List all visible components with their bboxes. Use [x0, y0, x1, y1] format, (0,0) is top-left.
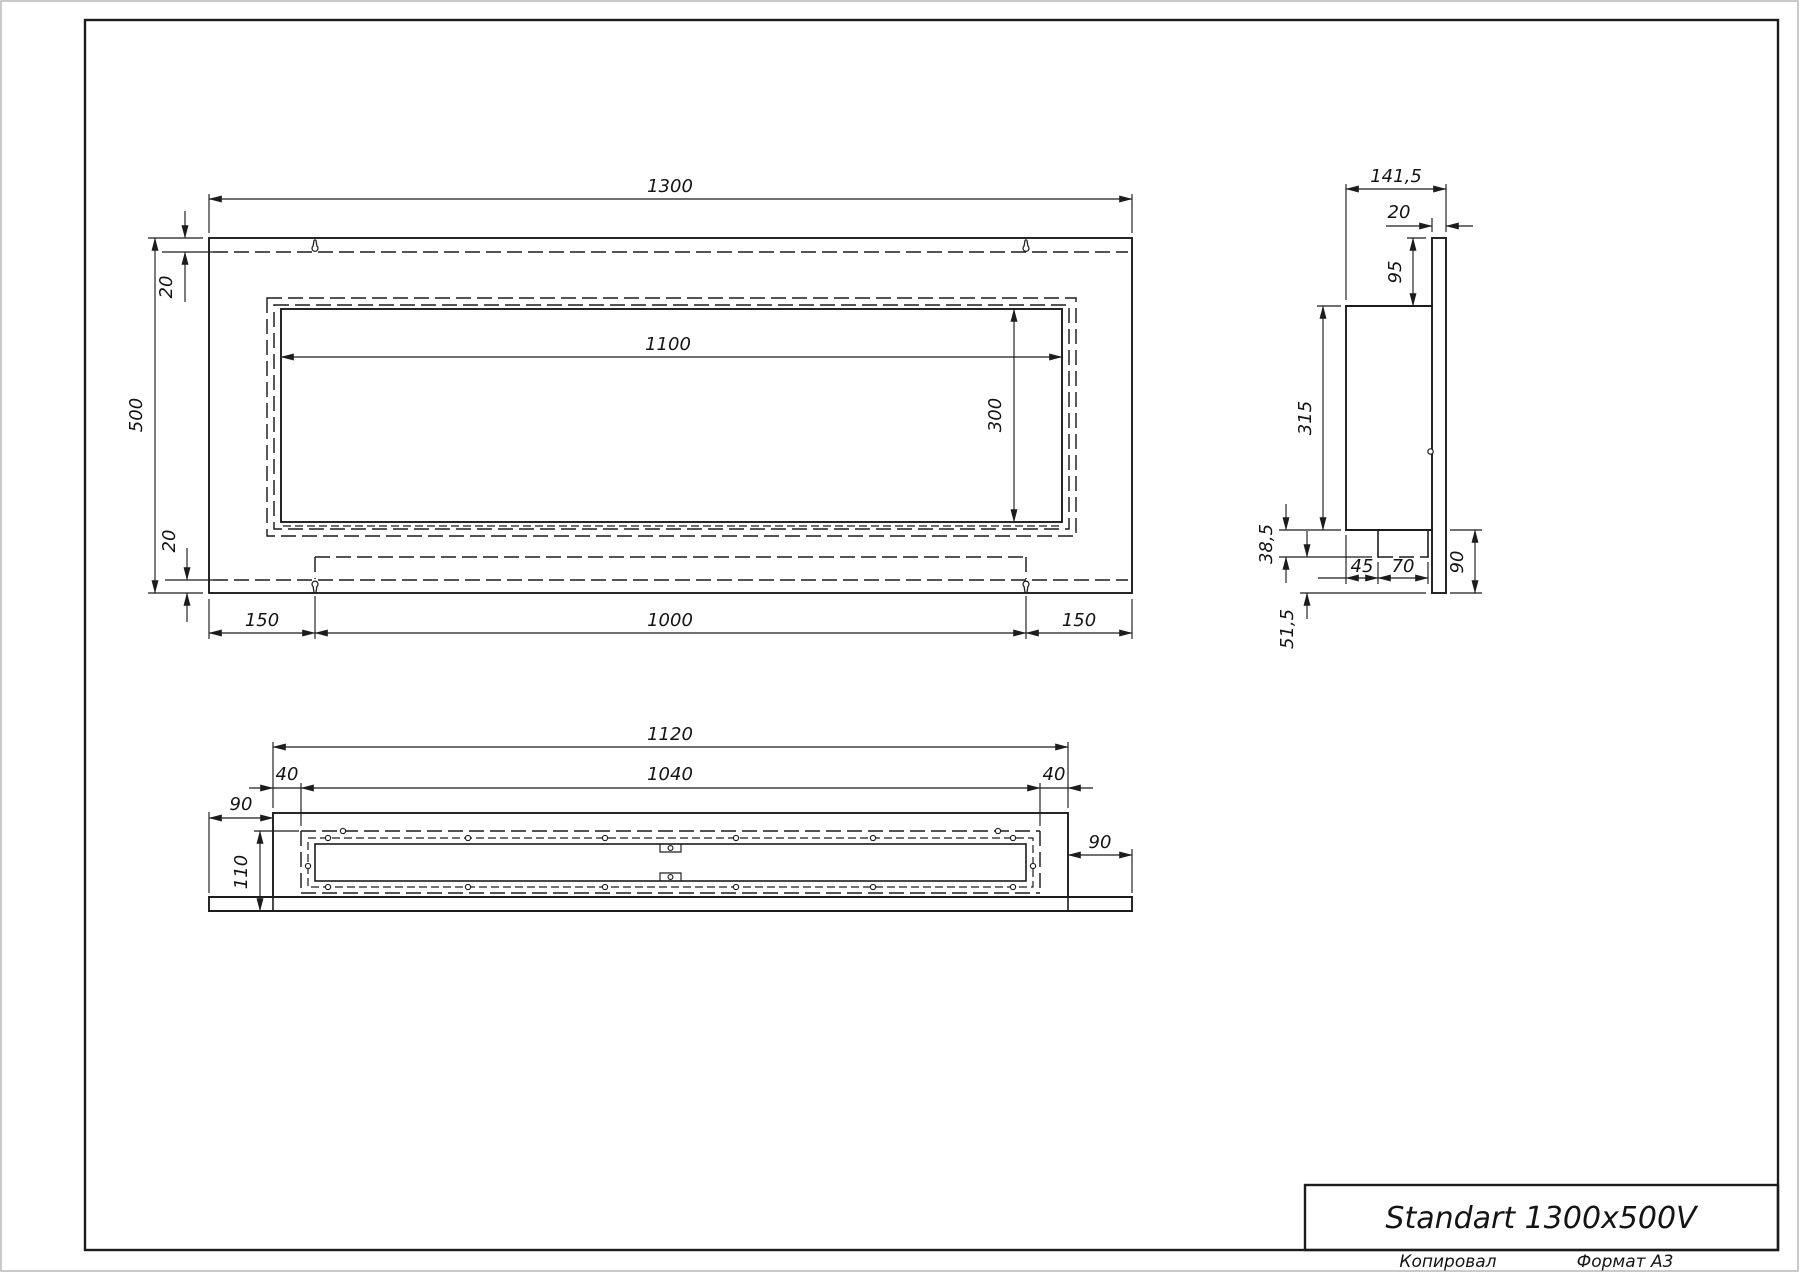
paper-edge — [1, 1, 1798, 1271]
dim-side-lower-margin: 51,5 — [1277, 609, 1298, 649]
dim-side-top-offset: 95 — [1385, 261, 1406, 284]
side-plate-outline — [1432, 238, 1446, 593]
dim-front-bottom-inset: 20 — [159, 530, 180, 553]
dim-front-overall-height: 500 — [126, 398, 147, 432]
technical-drawing: 1300 500 20 20 1100 300 150 1000 150 — [0, 0, 1800, 1273]
keyhole-slot-bottom-right-icon — [1023, 581, 1029, 592]
side-hole — [1428, 449, 1433, 454]
side-view: 141,5 20 95 315 38,5 51,5 45 70 — [1256, 166, 1482, 649]
dim-front-top-inset: 20 — [156, 276, 177, 299]
drawing-frame — [85, 20, 1778, 1250]
dim-bottom-body-width: 1120 — [647, 724, 693, 745]
title-block-model: Standart 1300x500V — [1385, 1201, 1699, 1236]
dim-front-overall-width: 1300 — [647, 176, 693, 197]
dim-side-bottom-extension: 90 — [1447, 551, 1468, 574]
dim-bottom-opening-depth: 110 — [231, 855, 252, 889]
keyhole-slot-top-left-icon — [312, 240, 318, 251]
title-block-format-label: Формат А3 — [1577, 1252, 1674, 1272]
dim-side-tray-depth: 70 — [1392, 556, 1415, 577]
dim-front-slot-right: 150 — [1062, 610, 1096, 631]
dim-side-body-height: 315 — [1295, 401, 1316, 435]
title-block: Standart 1300x500V Копировал Формат А3 — [1305, 1185, 1778, 1272]
keyhole-slot-bottom-left-icon — [312, 581, 318, 592]
dim-front-slot-span: 1000 — [647, 610, 693, 631]
dim-bottom-inset-left: 40 — [276, 764, 299, 785]
dim-bottom-inset-right: 40 — [1043, 764, 1066, 785]
dim-bottom-opening-width: 1040 — [647, 764, 693, 785]
bottom-body-outline — [273, 813, 1068, 897]
dim-front-opening-height: 300 — [985, 398, 1006, 432]
dim-front-opening-width: 1100 — [645, 334, 691, 355]
keyhole-slot-top-right-icon — [1023, 240, 1029, 251]
dim-side-plate-thickness: 20 — [1388, 202, 1411, 223]
title-block-copied-label: Копировал — [1399, 1252, 1496, 1272]
dim-side-tray-height: 38,5 — [1256, 524, 1277, 564]
dim-bottom-margin-right: 90 — [1089, 832, 1112, 853]
drawing-sheet: 1300 500 20 20 1100 300 150 1000 150 — [0, 0, 1800, 1273]
bottom-view: 1120 40 1040 40 90 110 90 — [209, 724, 1132, 911]
dim-bottom-margin-left: 90 — [230, 794, 253, 815]
front-view: 1300 500 20 20 1100 300 150 1000 150 — [126, 176, 1132, 639]
dim-side-tray-offset: 45 — [1351, 556, 1374, 577]
dim-side-overall-depth: 141,5 — [1370, 166, 1422, 187]
dim-front-slot-left: 150 — [245, 610, 279, 631]
